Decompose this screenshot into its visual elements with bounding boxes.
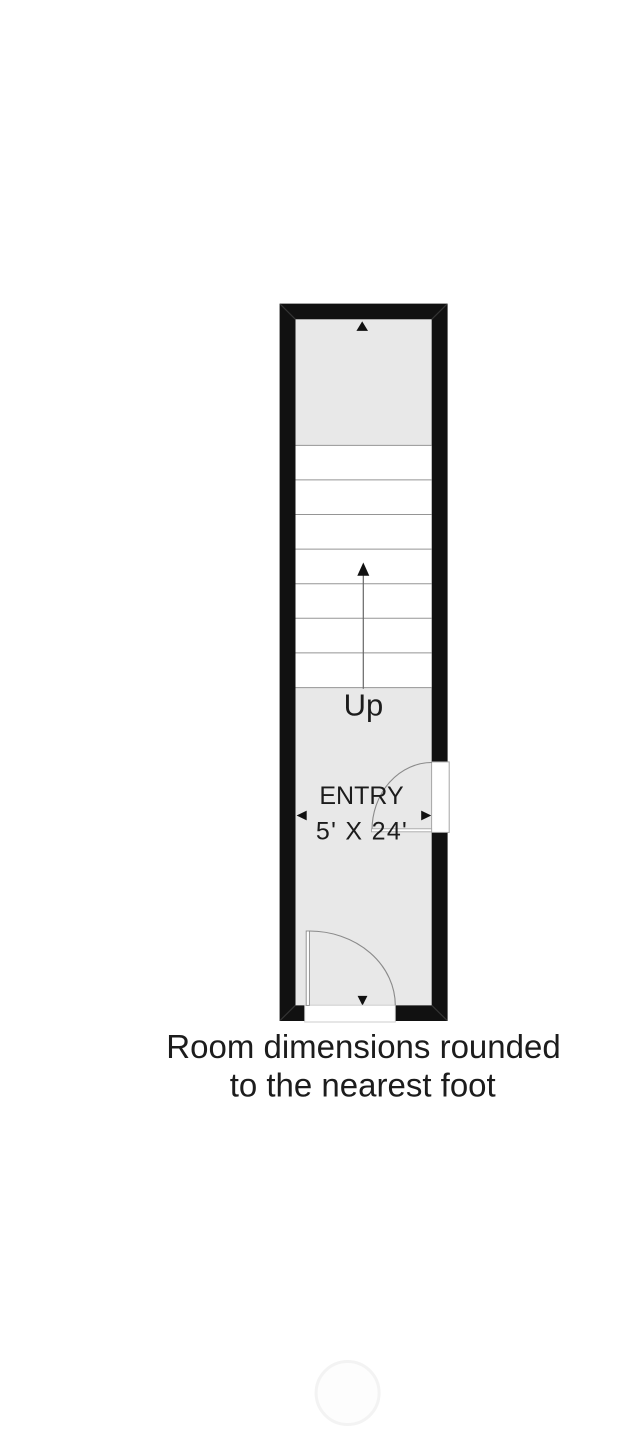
svg-text:5' X 24': 5' X 24': [316, 817, 408, 845]
svg-text:to the nearest foot: to the nearest foot: [230, 1067, 496, 1104]
svg-text:ENTRY: ENTRY: [319, 782, 404, 810]
svg-text:Room dimensions rounded: Room dimensions rounded: [166, 1028, 560, 1065]
svg-text:Up: Up: [344, 688, 384, 723]
